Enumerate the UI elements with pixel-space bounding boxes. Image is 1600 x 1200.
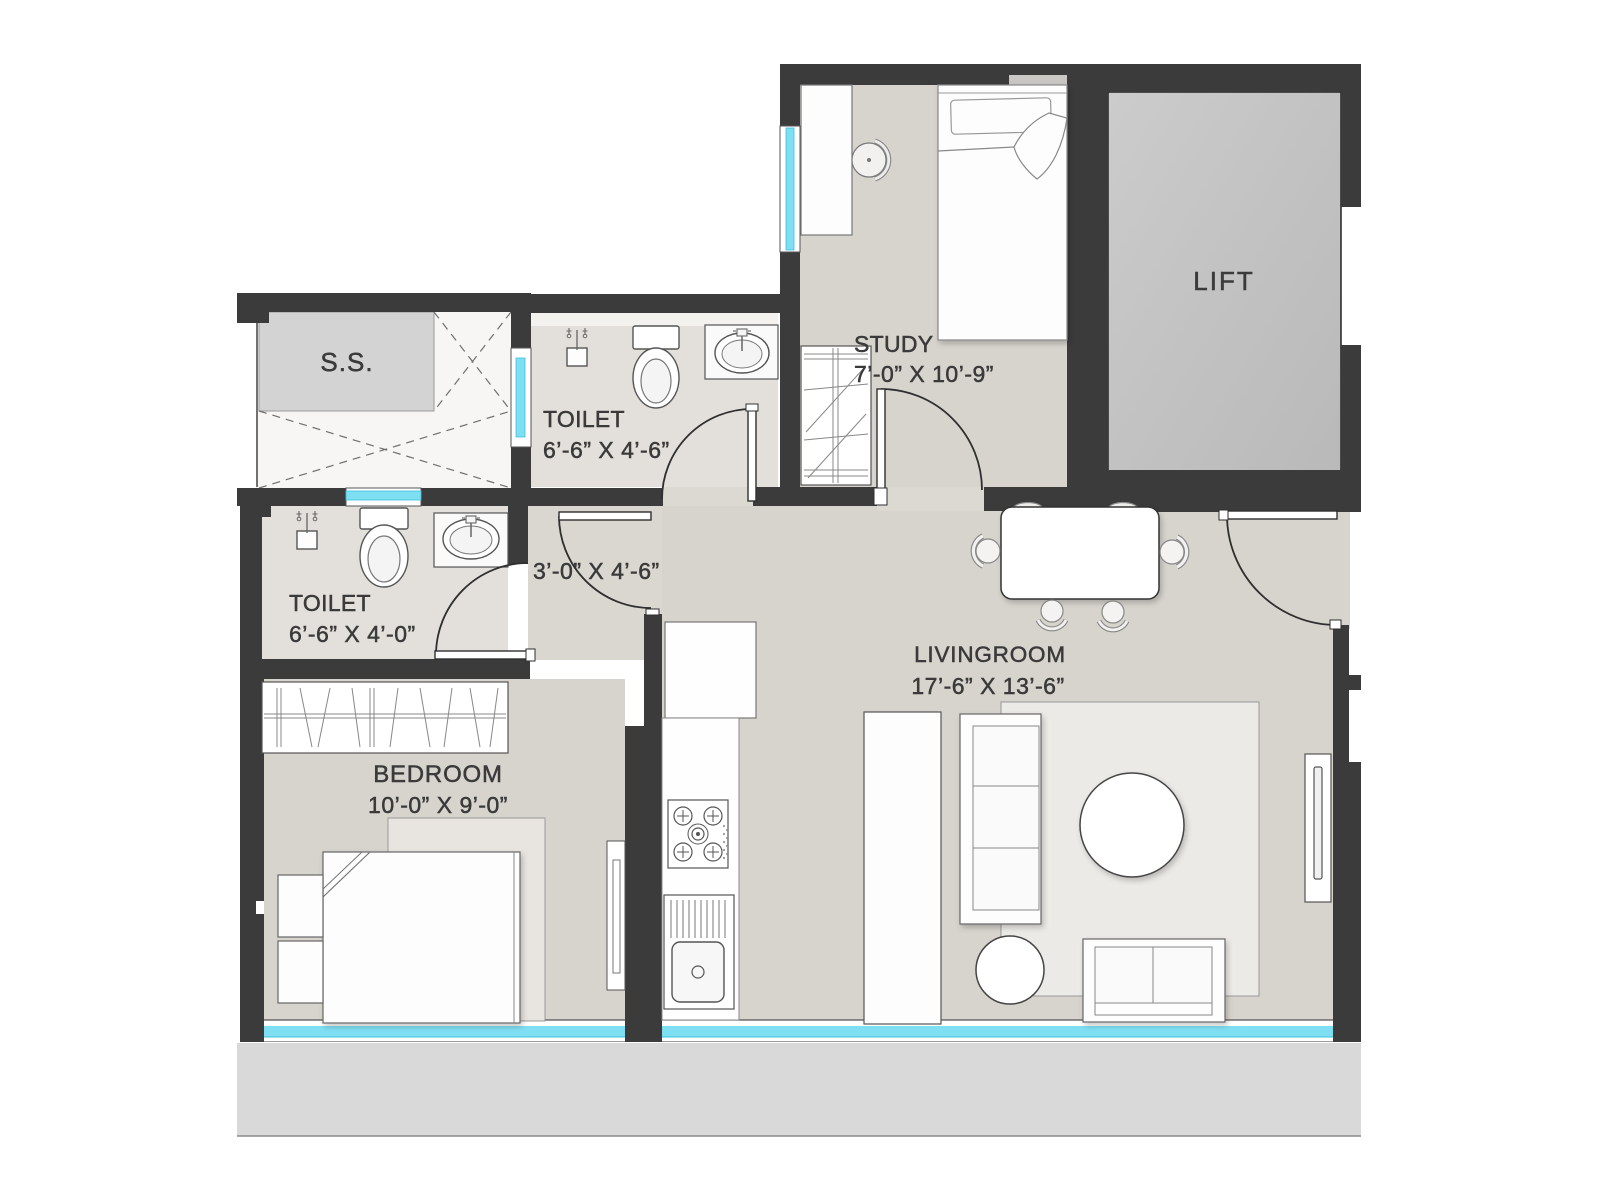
svg-text:BEDROOM: BEDROOM xyxy=(373,761,503,788)
svg-text:STUDY: STUDY xyxy=(854,331,933,357)
svg-text:7’-0” X 10’-9”: 7’-0” X 10’-9” xyxy=(854,361,994,387)
svg-text:S.S.: S.S. xyxy=(320,347,373,377)
svg-text:TOILET: TOILET xyxy=(289,590,371,616)
svg-text:17’-6” X 13’-6”: 17’-6” X 13’-6” xyxy=(911,673,1064,699)
svg-text:10’-0” X 9’-0”: 10’-0” X 9’-0” xyxy=(368,792,508,818)
svg-text:TOILET: TOILET xyxy=(543,406,625,432)
svg-text:3’-0” X 4’-6”: 3’-0” X 4’-6” xyxy=(533,558,660,584)
svg-text:LIVINGROOM: LIVINGROOM xyxy=(914,642,1066,667)
svg-text:LIFT: LIFT xyxy=(1193,266,1254,296)
svg-text:6’-6” X 4’-0”: 6’-6” X 4’-0” xyxy=(289,621,416,647)
svg-text:6’-6” X 4’-6”: 6’-6” X 4’-6” xyxy=(543,437,670,463)
